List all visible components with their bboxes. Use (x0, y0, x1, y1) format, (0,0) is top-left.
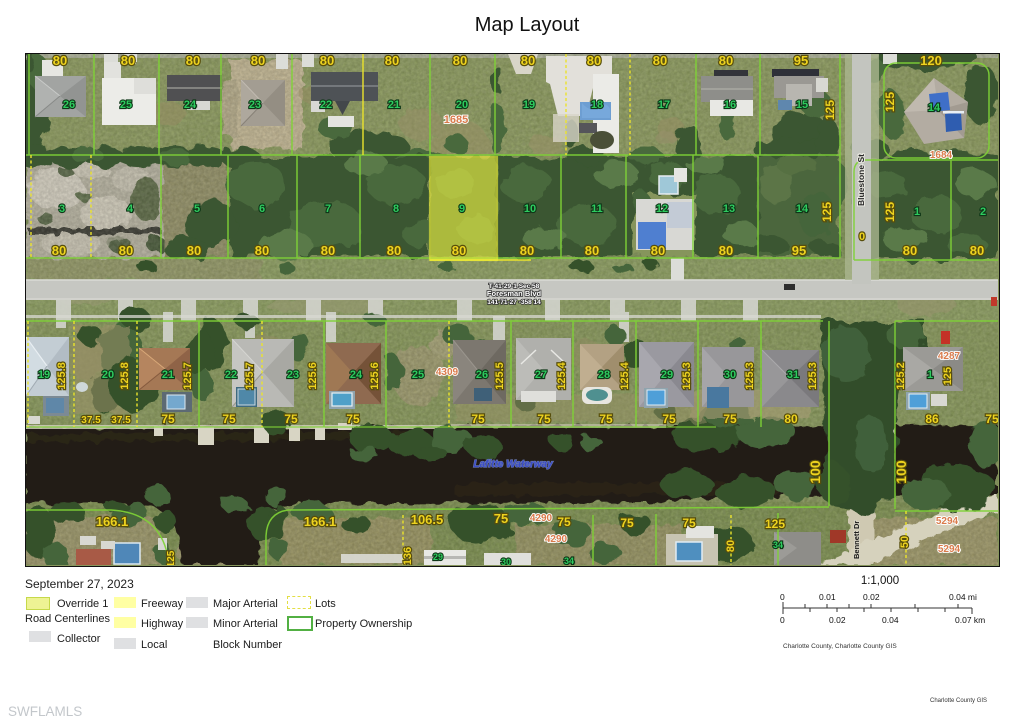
svg-text:80: 80 (251, 54, 265, 68)
svg-text:19: 19 (38, 369, 50, 381)
svg-text:125: 125 (823, 100, 837, 120)
svg-text:75: 75 (494, 511, 508, 526)
svg-text:95: 95 (792, 243, 806, 258)
svg-text:1: 1 (914, 206, 920, 218)
svg-text:75: 75 (346, 412, 360, 426)
svg-text:8: 8 (393, 203, 399, 215)
svg-text:80: 80 (321, 243, 335, 258)
svg-text:Bluestone St: Bluestone St (856, 154, 866, 206)
svg-text:125.6: 125.6 (369, 362, 381, 390)
svg-text:23: 23 (249, 99, 261, 111)
svg-text:80: 80 (719, 54, 733, 68)
svg-text:80: 80 (385, 54, 399, 68)
svg-text:1: 1 (927, 369, 933, 381)
svg-text:166.1: 166.1 (96, 514, 129, 529)
svg-text:5: 5 (194, 203, 200, 215)
svg-text:100: 100 (893, 460, 909, 484)
svg-text:80: 80 (719, 243, 733, 258)
svg-text:80: 80 (651, 243, 665, 258)
svg-text:75: 75 (662, 412, 676, 426)
svg-text:0.02: 0.02 (829, 615, 846, 625)
svg-text:125: 125 (765, 517, 785, 531)
svg-text:80: 80 (186, 54, 200, 68)
svg-text:136: 136 (402, 547, 414, 565)
svg-text:11: 11 (591, 203, 603, 215)
svg-text:20: 20 (456, 99, 468, 111)
svg-text:1684: 1684 (930, 150, 953, 161)
svg-text:30: 30 (724, 369, 736, 381)
svg-text:80: 80 (52, 243, 66, 258)
svg-text:80: 80 (119, 243, 133, 258)
svg-text:100: 100 (807, 460, 823, 484)
svg-text:17: 17 (658, 99, 670, 111)
svg-text:29: 29 (433, 552, 443, 562)
svg-text:166.1: 166.1 (304, 514, 337, 529)
svg-text:125.7: 125.7 (244, 362, 256, 390)
svg-text:95: 95 (794, 54, 808, 68)
svg-text:12: 12 (656, 203, 668, 215)
svg-text:80: 80 (903, 243, 917, 258)
svg-text:21: 21 (162, 369, 174, 381)
svg-text:75: 75 (599, 412, 613, 426)
svg-text:22: 22 (320, 99, 332, 111)
svg-text:23: 23 (287, 369, 299, 381)
svg-text:1685: 1685 (444, 114, 468, 126)
svg-text:80: 80 (520, 243, 534, 258)
svg-text:125: 125 (883, 92, 897, 112)
svg-text:16: 16 (724, 99, 736, 111)
svg-text:80: 80 (187, 243, 201, 258)
svg-text:141-71-27 -358 14: 141-71-27 -358 14 (487, 299, 541, 306)
svg-text:21: 21 (388, 99, 400, 111)
svg-text:125: 125 (942, 367, 954, 385)
svg-text:125.3: 125.3 (807, 362, 819, 390)
svg-text:80: 80 (970, 243, 984, 258)
svg-text:125.3: 125.3 (681, 362, 693, 390)
svg-text:75: 75 (557, 515, 571, 529)
svg-text:125.7: 125.7 (182, 362, 194, 390)
svg-text:75: 75 (723, 412, 737, 426)
svg-text:80: 80 (453, 54, 467, 68)
svg-text:75: 75 (222, 412, 236, 426)
svg-text:34: 34 (773, 540, 783, 550)
svg-text:Bennett Dr: Bennett Dr (852, 521, 861, 559)
svg-text:80: 80 (320, 54, 334, 68)
svg-text:125.5: 125.5 (494, 362, 506, 390)
svg-text:37.5: 37.5 (81, 415, 101, 426)
svg-text:75: 75 (284, 412, 298, 426)
svg-text:125.6: 125.6 (307, 362, 319, 390)
svg-text:86: 86 (925, 412, 939, 426)
svg-text:28: 28 (598, 369, 610, 381)
svg-text:6: 6 (259, 203, 265, 215)
svg-text:24: 24 (350, 369, 363, 381)
svg-text:14: 14 (796, 203, 809, 215)
svg-text:22: 22 (225, 369, 237, 381)
svg-text:15: 15 (796, 99, 808, 111)
svg-text:50: 50 (899, 536, 911, 548)
svg-text:75: 75 (682, 516, 696, 530)
svg-text:80: 80 (725, 540, 737, 552)
svg-text:18: 18 (591, 99, 603, 111)
svg-text:80: 80 (53, 54, 67, 68)
svg-text:20: 20 (102, 369, 114, 381)
svg-text:75: 75 (620, 516, 634, 530)
svg-text:120: 120 (920, 54, 942, 68)
svg-text:34: 34 (564, 556, 574, 565)
svg-text:4: 4 (127, 203, 134, 215)
svg-text:75: 75 (985, 412, 998, 426)
svg-text:0.07 km: 0.07 km (955, 615, 985, 625)
svg-text:25: 25 (120, 99, 132, 111)
svg-text:5294: 5294 (936, 516, 959, 527)
svg-text:10: 10 (524, 203, 536, 215)
svg-text:27: 27 (535, 369, 547, 381)
svg-text:80: 80 (587, 54, 601, 68)
svg-text:125.2: 125.2 (895, 362, 907, 390)
svg-text:0: 0 (859, 231, 865, 243)
svg-text:125: 125 (166, 550, 177, 565)
svg-text:80: 80 (653, 54, 667, 68)
svg-text:0.01: 0.01 (819, 592, 836, 602)
svg-text:80: 80 (255, 243, 269, 258)
svg-text:125.8: 125.8 (119, 362, 131, 390)
svg-text:0: 0 (780, 592, 785, 602)
svg-text:3: 3 (59, 203, 65, 215)
svg-text:4287: 4287 (938, 351, 961, 362)
svg-text:2: 2 (980, 206, 986, 218)
svg-text:5294: 5294 (938, 544, 961, 555)
svg-text:80: 80 (452, 243, 466, 258)
svg-text:31: 31 (787, 369, 799, 381)
svg-text:24: 24 (184, 99, 197, 111)
svg-text:30: 30 (501, 557, 511, 565)
svg-text:125.3: 125.3 (744, 362, 756, 390)
svg-text:0.04: 0.04 (882, 615, 899, 625)
svg-text:106.5: 106.5 (411, 512, 444, 527)
svg-text:125.4: 125.4 (556, 361, 568, 389)
svg-text:0: 0 (780, 615, 785, 625)
svg-text:26: 26 (63, 99, 75, 111)
svg-text:4309: 4309 (436, 367, 459, 378)
svg-text:9: 9 (459, 203, 465, 215)
svg-text:80: 80 (521, 54, 535, 68)
svg-text:19: 19 (523, 99, 535, 111)
svg-text:80: 80 (121, 54, 135, 68)
svg-text:0.04 mi: 0.04 mi (949, 592, 977, 602)
svg-text:Lafitte Waterway: Lafitte Waterway (473, 459, 553, 470)
svg-text:4290: 4290 (545, 534, 568, 545)
svg-text:29: 29 (661, 369, 673, 381)
svg-text:7: 7 (325, 203, 331, 215)
svg-text:80: 80 (784, 412, 798, 426)
svg-text:Foresman Blvd: Foresman Blvd (487, 289, 542, 298)
svg-text:25: 25 (412, 369, 424, 381)
svg-text:75: 75 (537, 412, 551, 426)
svg-text:13: 13 (723, 203, 735, 215)
svg-text:80: 80 (387, 243, 401, 258)
svg-text:14: 14 (928, 102, 941, 114)
svg-text:4290: 4290 (530, 513, 553, 524)
svg-text:75: 75 (161, 412, 175, 426)
svg-text:125: 125 (820, 202, 834, 222)
svg-text:80: 80 (585, 243, 599, 258)
svg-text:125.8: 125.8 (56, 362, 68, 390)
svg-text:125.4: 125.4 (619, 361, 631, 389)
svg-text:0.02: 0.02 (863, 592, 880, 602)
svg-text:26: 26 (476, 369, 488, 381)
svg-text:37.5: 37.5 (111, 415, 131, 426)
svg-text:75: 75 (471, 412, 485, 426)
svg-text:125: 125 (883, 202, 897, 222)
